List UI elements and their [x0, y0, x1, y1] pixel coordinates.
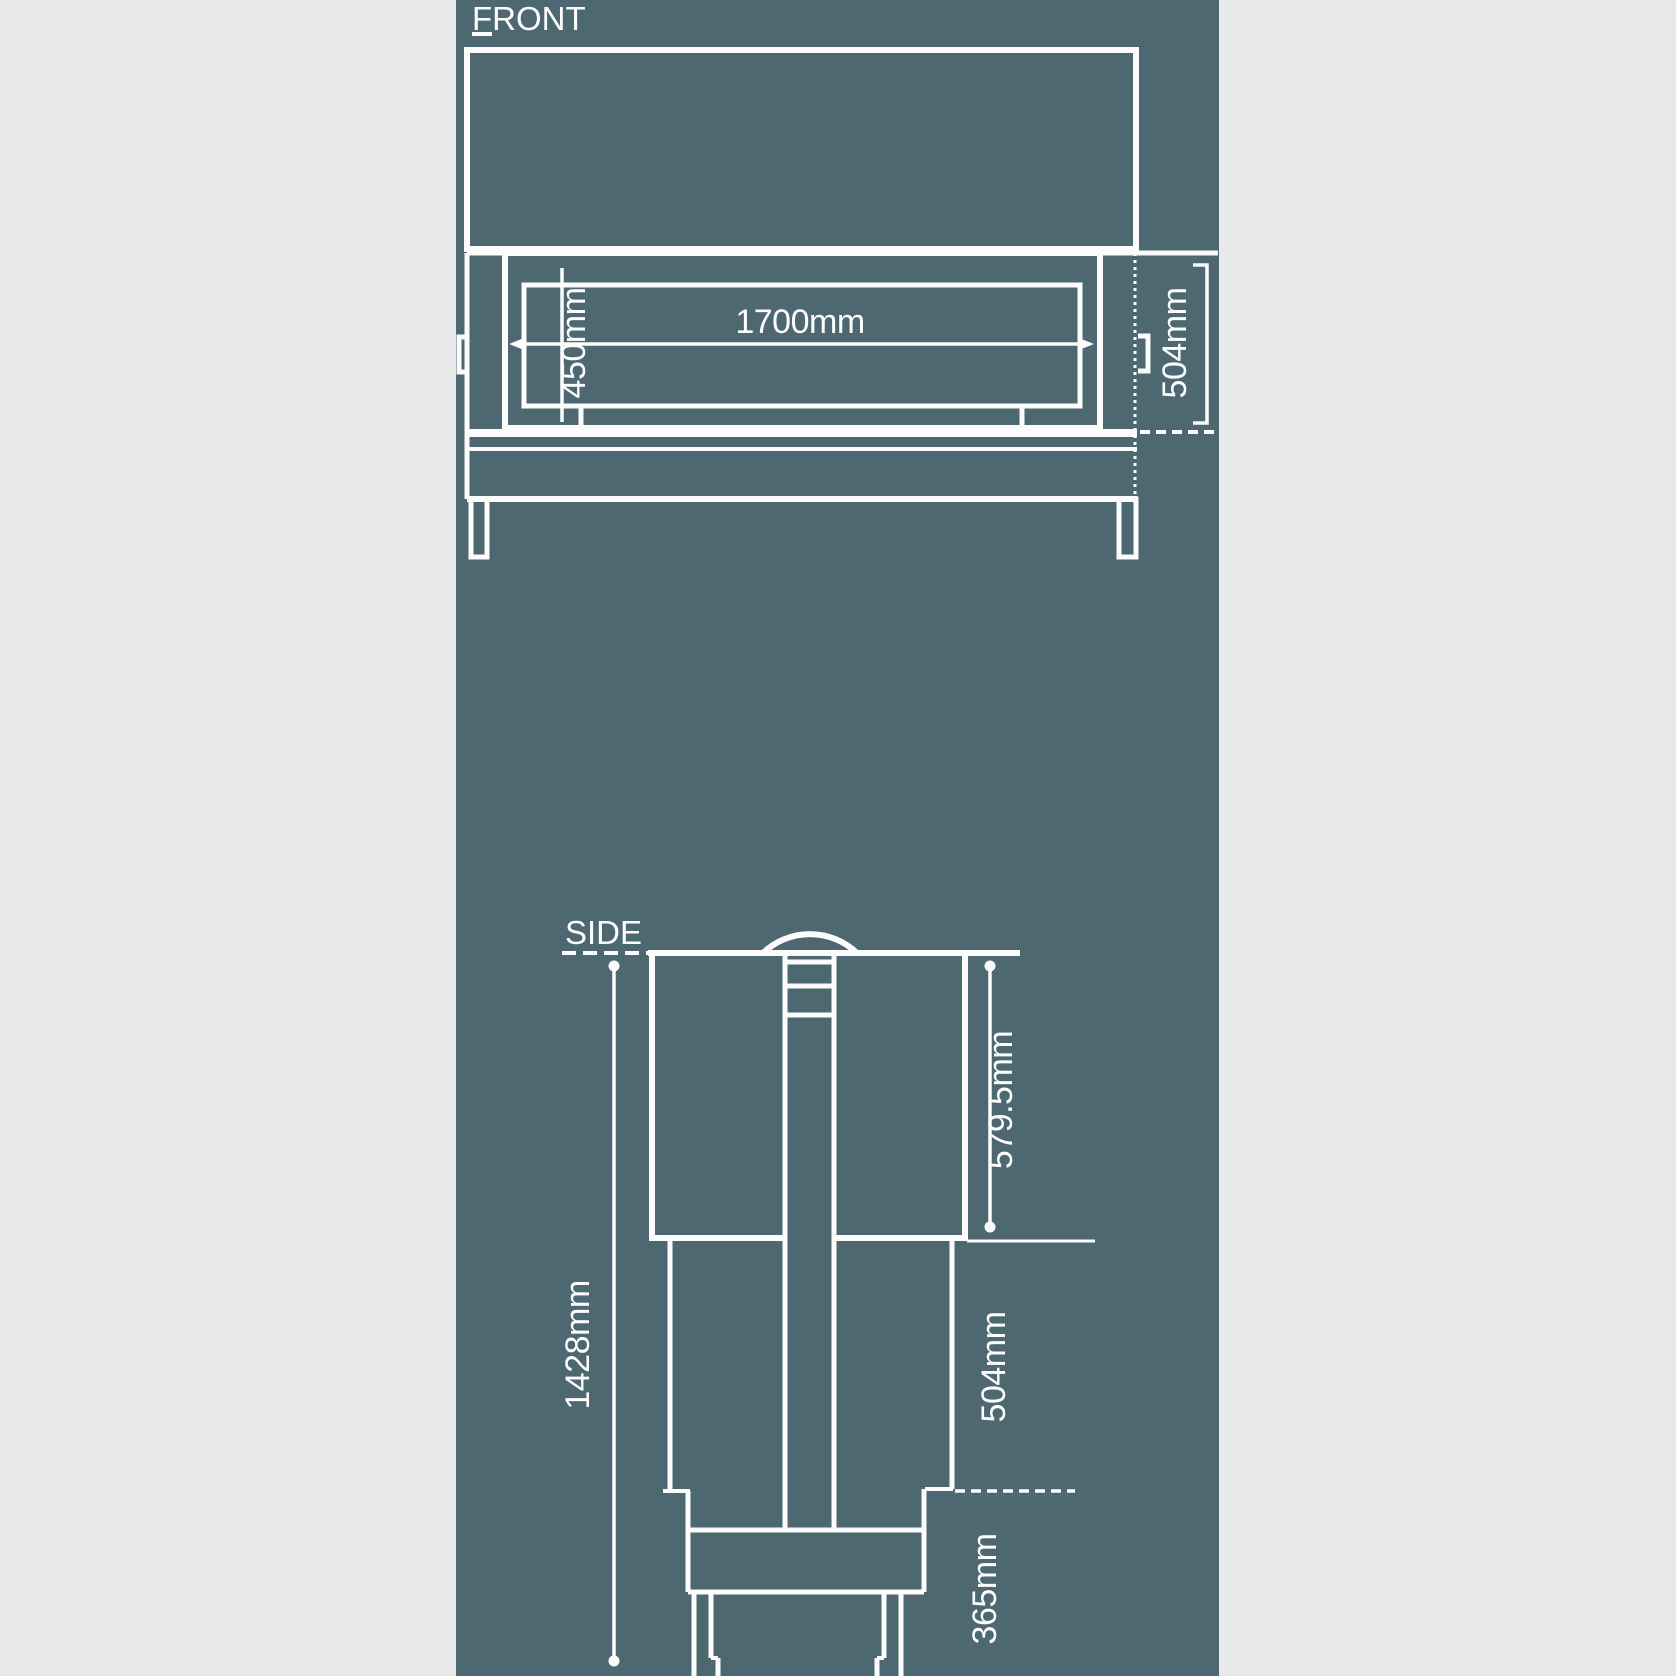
front-opening-label: 450mm [555, 288, 593, 399]
blueprint-svg: FRONT 1700mm 450mm [0, 0, 1676, 1676]
side-base-label: 365mm [966, 1534, 1004, 1645]
side-hood-dot-bottom [985, 1222, 996, 1233]
side-hood-label: 579.5mm [982, 1031, 1020, 1169]
side-hood-dot-top [985, 961, 996, 972]
front-opening-dimension: 450mm [555, 268, 593, 422]
front-width-label: 1700mm [735, 303, 864, 341]
side-view-label: SIDE [565, 914, 642, 951]
front-depth-label: 504mm [1156, 288, 1194, 399]
side-overall-dot-top [609, 961, 620, 972]
side-base-dimension: 365mm [966, 1534, 1004, 1645]
side-overall-dot-bottom [609, 1656, 620, 1667]
drawing-sheet: FRONT 1700mm 450mm [0, 0, 1676, 1676]
side-middle-label: 504mm [975, 1312, 1013, 1423]
front-view-label: FRONT [472, 0, 586, 37]
side-overall-label: 1428mm [559, 1280, 597, 1409]
